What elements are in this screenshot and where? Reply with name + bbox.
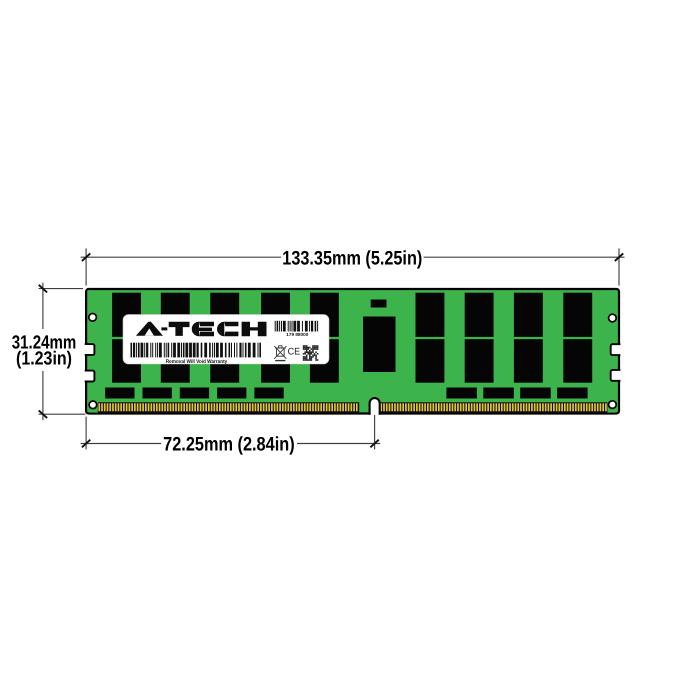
svg-text:(1.23in): (1.23in) [16,348,72,369]
svg-text:133.35mm (5.25in): 133.35mm (5.25in) [282,247,422,269]
svg-text:72.25mm (2.84in): 72.25mm (2.84in) [163,434,295,456]
svg-text:179 88000: 179 88000 [286,332,309,337]
svg-text:CE: CE [288,346,301,357]
svg-text:Removal Will Void Warranty: Removal Will Void Warranty [166,359,228,365]
